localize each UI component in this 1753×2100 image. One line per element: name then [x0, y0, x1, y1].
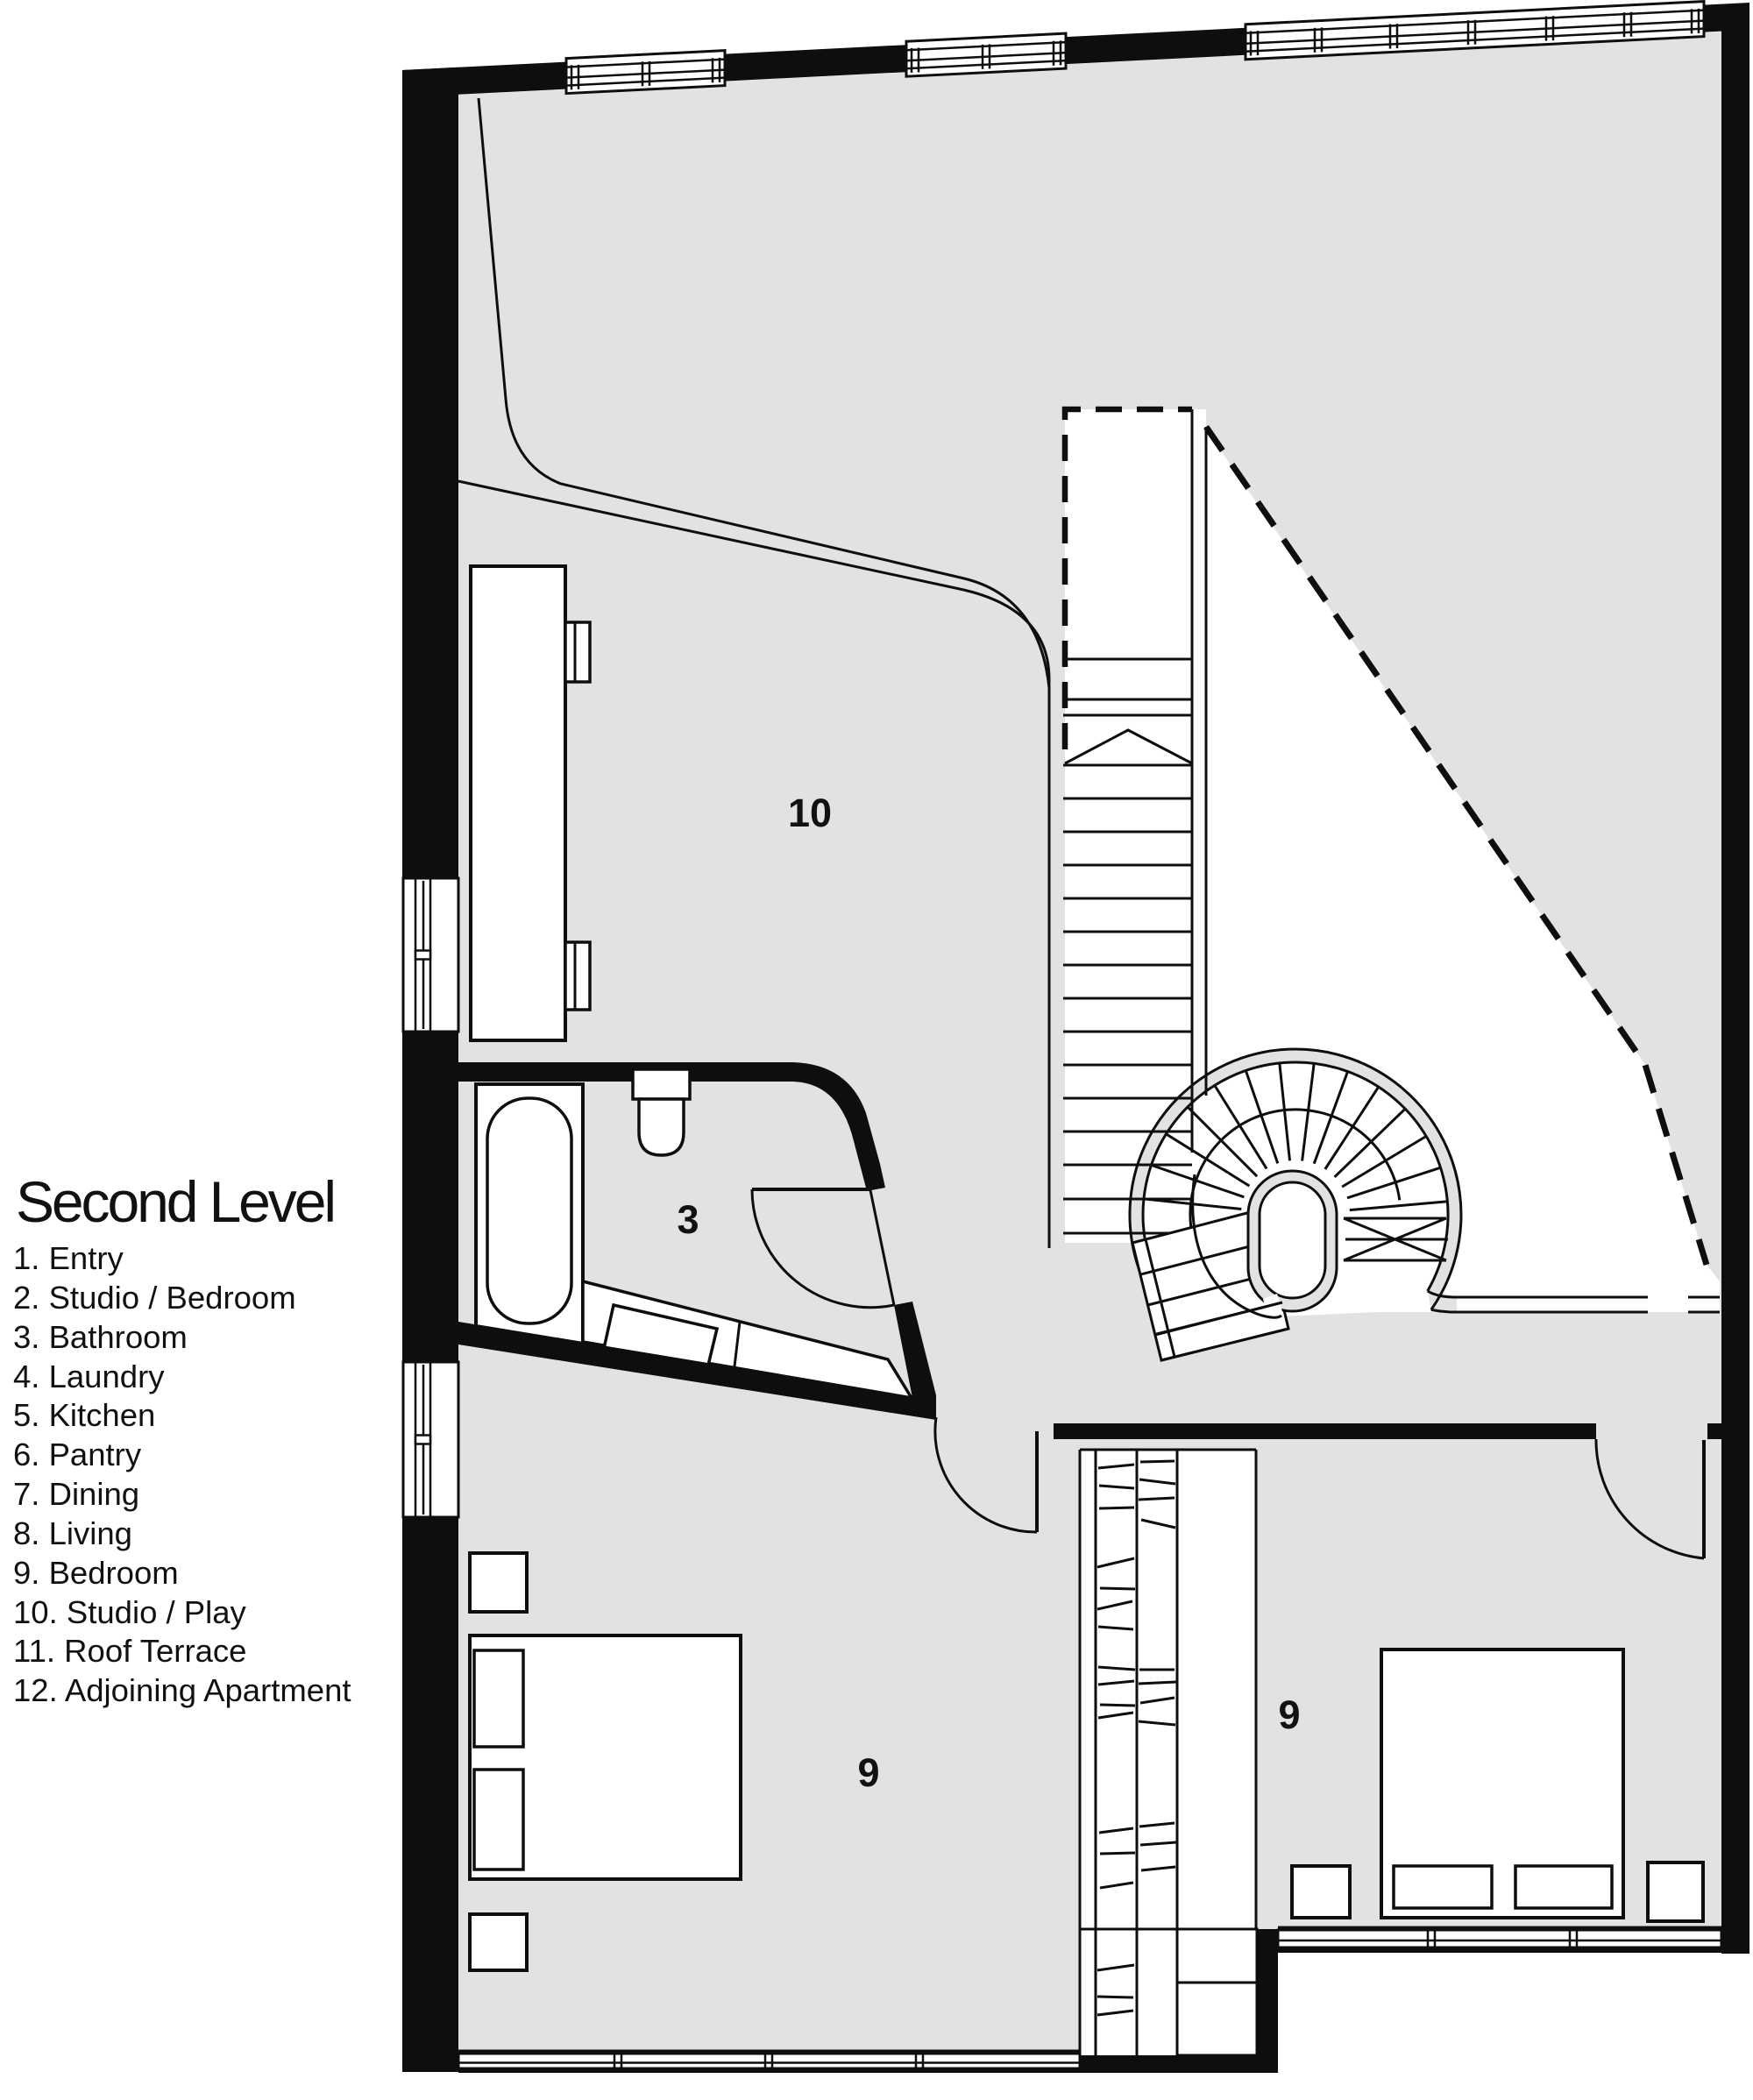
svg-text:9. Bedroom: 9. Bedroom [13, 1555, 179, 1591]
svg-text:Second Level: Second Level [16, 1169, 337, 1234]
svg-text:2. Studio / Bedroom: 2. Studio / Bedroom [13, 1280, 296, 1316]
svg-text:6. Pantry: 6. Pantry [13, 1437, 142, 1472]
svg-text:3: 3 [677, 1197, 699, 1242]
svg-text:10. Studio / Play: 10. Studio / Play [13, 1594, 247, 1630]
svg-text:5. Kitchen: 5. Kitchen [13, 1397, 155, 1433]
svg-text:4. Laundry: 4. Laundry [13, 1359, 165, 1394]
svg-text:7. Dining: 7. Dining [13, 1476, 139, 1512]
svg-text:3. Bathroom: 3. Bathroom [13, 1319, 188, 1355]
svg-text:11. Roof Terrace: 11. Roof Terrace [13, 1633, 246, 1669]
svg-text:9: 9 [857, 1750, 879, 1795]
svg-text:9: 9 [1278, 1692, 1300, 1737]
svg-text:10: 10 [788, 791, 832, 835]
svg-text:1. Entry: 1. Entry [13, 1240, 124, 1276]
svg-text:8. Living: 8. Living [13, 1515, 132, 1551]
svg-text:12. Adjoining Apartment: 12. Adjoining Apartment [13, 1672, 351, 1708]
